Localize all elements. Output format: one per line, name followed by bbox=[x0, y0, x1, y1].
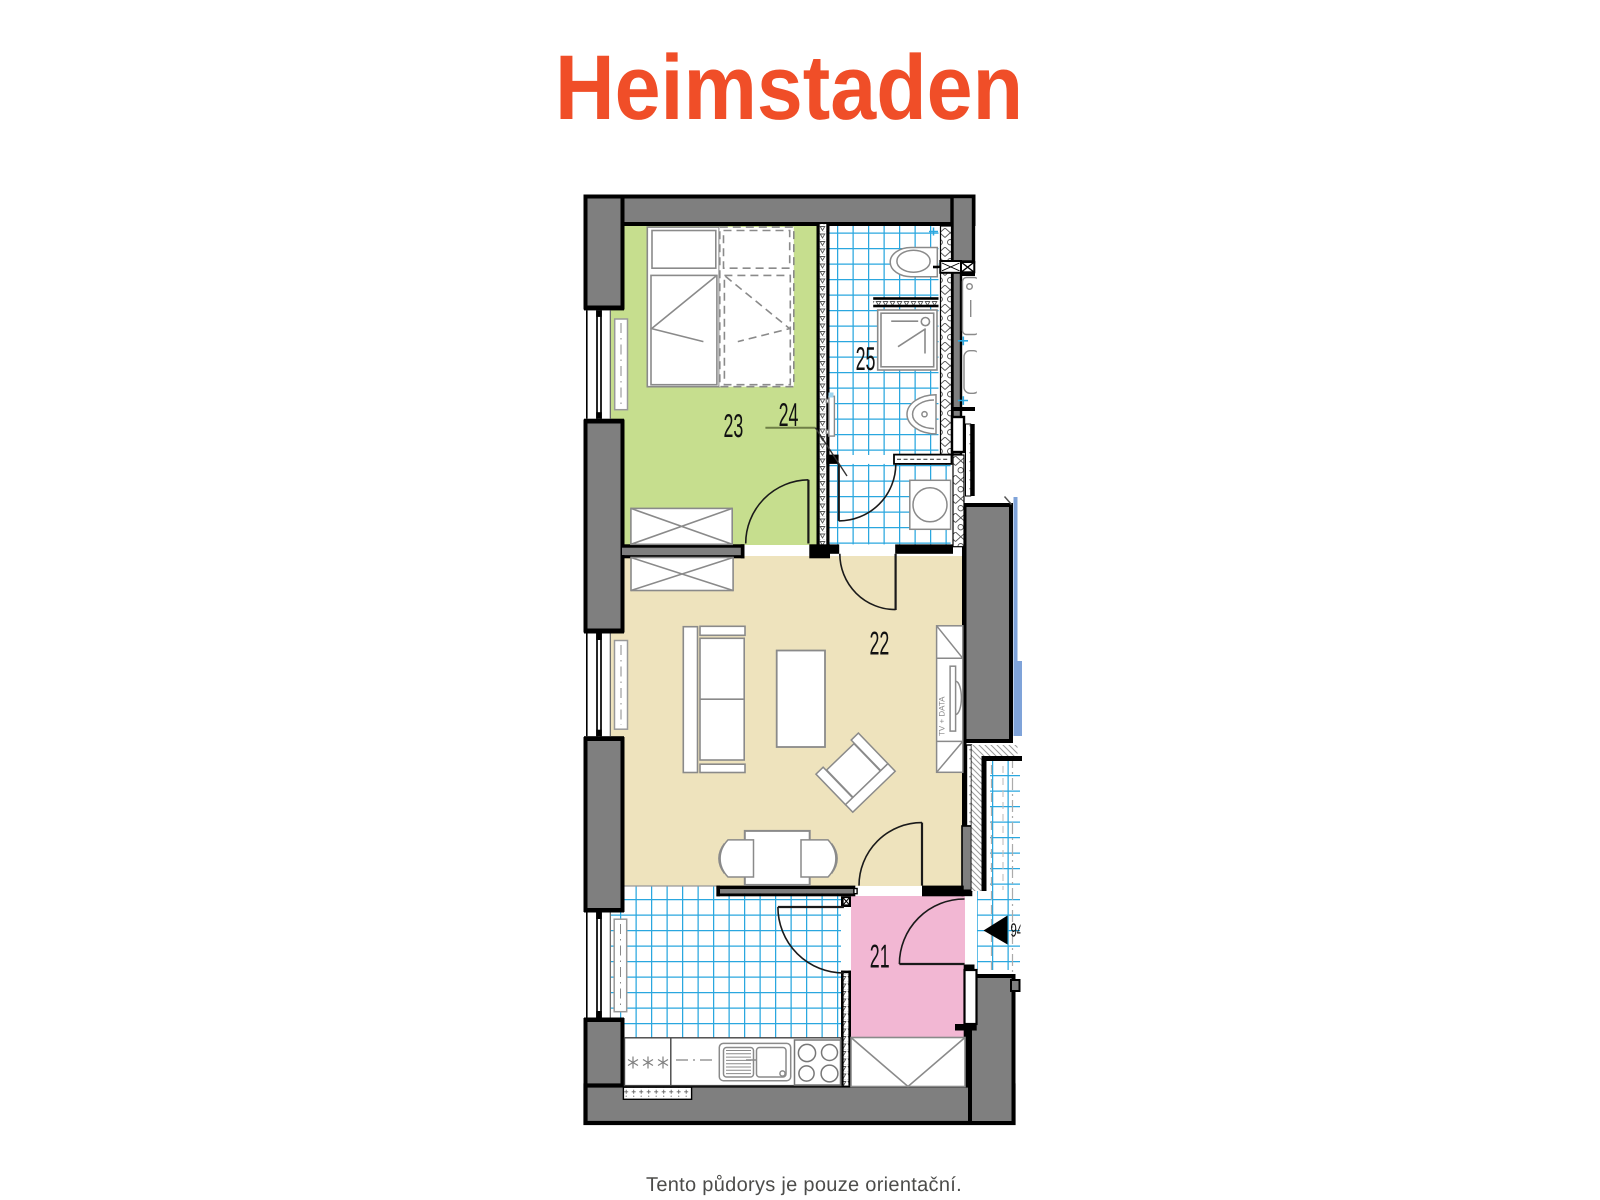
svg-text:22: 22 bbox=[870, 625, 890, 662]
svg-text:Heimstaden: Heimstaden bbox=[555, 37, 1023, 139]
svg-text:23: 23 bbox=[724, 407, 744, 444]
svg-text:21: 21 bbox=[870, 938, 890, 975]
svg-text:Tento půdorys je pouze orienta: Tento půdorys je pouze orientační. bbox=[646, 1174, 962, 1196]
svg-text:TV + DATA: TV + DATA bbox=[938, 696, 947, 736]
svg-text:25: 25 bbox=[856, 340, 876, 377]
